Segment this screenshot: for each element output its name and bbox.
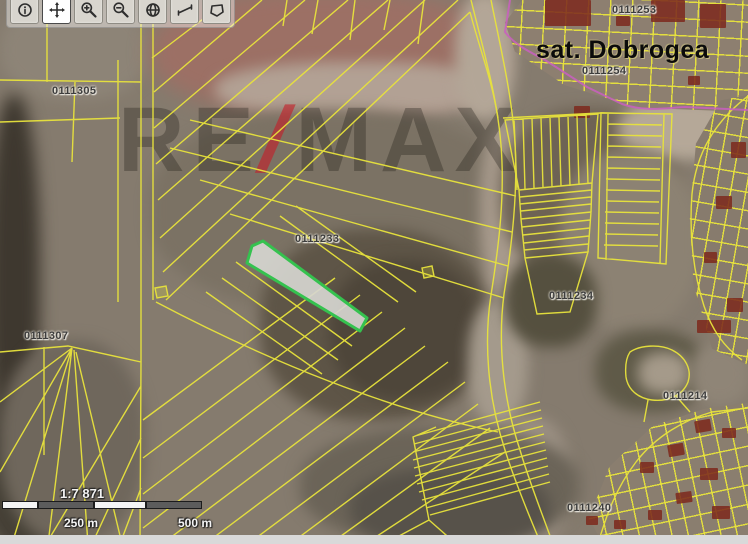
parcel-label: 0111234 — [549, 290, 593, 302]
parcel-lines-layer — [0, 0, 748, 544]
scale-mid-label: 250 m — [64, 516, 98, 530]
globe-icon — [144, 1, 162, 19]
scale-ratio: 1:7 871 — [60, 486, 104, 501]
map-canvas[interactable]: RE/MAX 0111305 — [0, 0, 748, 544]
midright-block-lines — [503, 113, 672, 314]
measure-distance-button[interactable] — [170, 0, 199, 24]
right-village-edges — [598, 96, 748, 544]
page-bottom-strip — [0, 535, 748, 544]
zoom-out-button[interactable] — [106, 0, 135, 24]
measure-distance-icon — [176, 1, 194, 19]
parcel-label: 0111253 — [612, 4, 656, 16]
parcel-label: 0111240 — [567, 502, 611, 514]
zoom-out-icon — [112, 1, 130, 19]
selected-parcel[interactable] — [247, 241, 367, 331]
parcel-label: 0111307 — [24, 330, 68, 342]
scale-segment — [38, 501, 94, 509]
left-parcel-lines — [0, 0, 153, 544]
full-extent-button[interactable] — [138, 0, 167, 24]
pan-button[interactable] — [42, 0, 71, 24]
parcel-label: 0111305 — [52, 85, 96, 97]
zoom-in-button[interactable] — [74, 0, 103, 24]
identify-icon — [16, 1, 34, 19]
scale-segment — [94, 501, 146, 509]
measure-area-button[interactable] — [202, 0, 231, 24]
center-strip-lines — [156, 120, 516, 432]
village-name-label: sat. Dobrogea — [536, 36, 709, 65]
parcel-label: 0111233 — [295, 233, 339, 245]
parcel-label: 0111254 — [582, 65, 626, 77]
identify-button[interactable] — [10, 0, 39, 24]
scale-segment — [146, 501, 202, 509]
pan-icon — [48, 1, 66, 19]
measure-area-icon — [208, 1, 226, 19]
scale-segment — [2, 501, 38, 509]
road-lines — [471, 0, 553, 544]
upper-fan-lines — [152, 0, 498, 300]
map-toolbar — [6, 0, 235, 28]
zoom-in-icon — [80, 1, 98, 19]
parcel-label: 0111214 — [663, 390, 707, 402]
scrub-parcel-outline — [626, 346, 690, 422]
scale-end-label: 500 m — [178, 516, 212, 530]
